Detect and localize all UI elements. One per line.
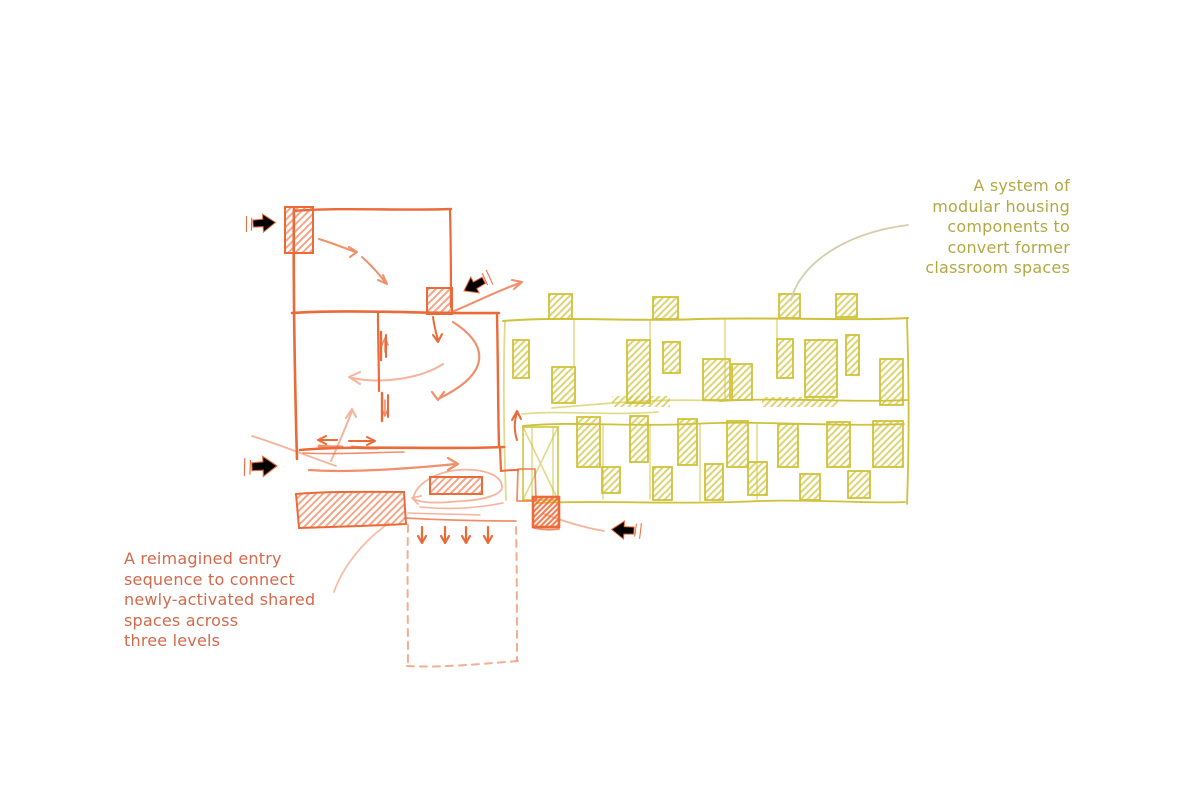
annotation-line: convert former	[925, 238, 1070, 259]
left-annotation: A reimagined entry sequence to connect n…	[124, 549, 315, 652]
stair-core-northwest	[285, 207, 313, 253]
door-marks-upper	[381, 332, 388, 360]
entry-arrow-northwest-icon	[246, 213, 276, 233]
sketch-drawing	[0, 0, 1200, 800]
housing-modules-roof	[549, 294, 857, 319]
annotation-line: three levels	[124, 631, 315, 652]
right-annotation-connector	[791, 225, 908, 300]
annotation-line: newly-activated shared	[124, 590, 315, 611]
entry-node	[533, 497, 559, 527]
sliding-door-arrows	[318, 436, 378, 448]
annotation-line: modular housing	[925, 197, 1070, 218]
door-marks-lower	[382, 393, 388, 421]
stair-core-east	[427, 288, 452, 314]
annotation-line: spaces across	[124, 611, 315, 632]
annotation-line: A system of	[925, 176, 1070, 197]
courtyard-dashed-outline	[407, 525, 518, 667]
modular-housing-sketch	[503, 294, 909, 504]
entry-arrow-east-icon	[611, 520, 641, 540]
right-annotation: A system of modular housing components t…	[925, 176, 1070, 279]
entry-arrow-west-icon	[244, 456, 278, 477]
housing-modules-lower	[577, 416, 903, 500]
entry-arrow-northeast-icon	[460, 269, 494, 299]
shared-space-block	[430, 477, 482, 494]
annotation-line: sequence to connect	[124, 570, 315, 591]
architectural-sketch-canvas: A reimagined entry sequence to connect n…	[0, 0, 1200, 800]
annotation-line: classroom spaces	[925, 258, 1070, 279]
downward-flow-arrows	[418, 527, 492, 543]
annotation-line: A reimagined entry	[124, 549, 315, 570]
left-annotation-connector	[334, 523, 389, 592]
housing-modules-upper	[513, 335, 903, 407]
annotation-line: components to	[925, 217, 1070, 238]
wall-top	[294, 209, 451, 211]
